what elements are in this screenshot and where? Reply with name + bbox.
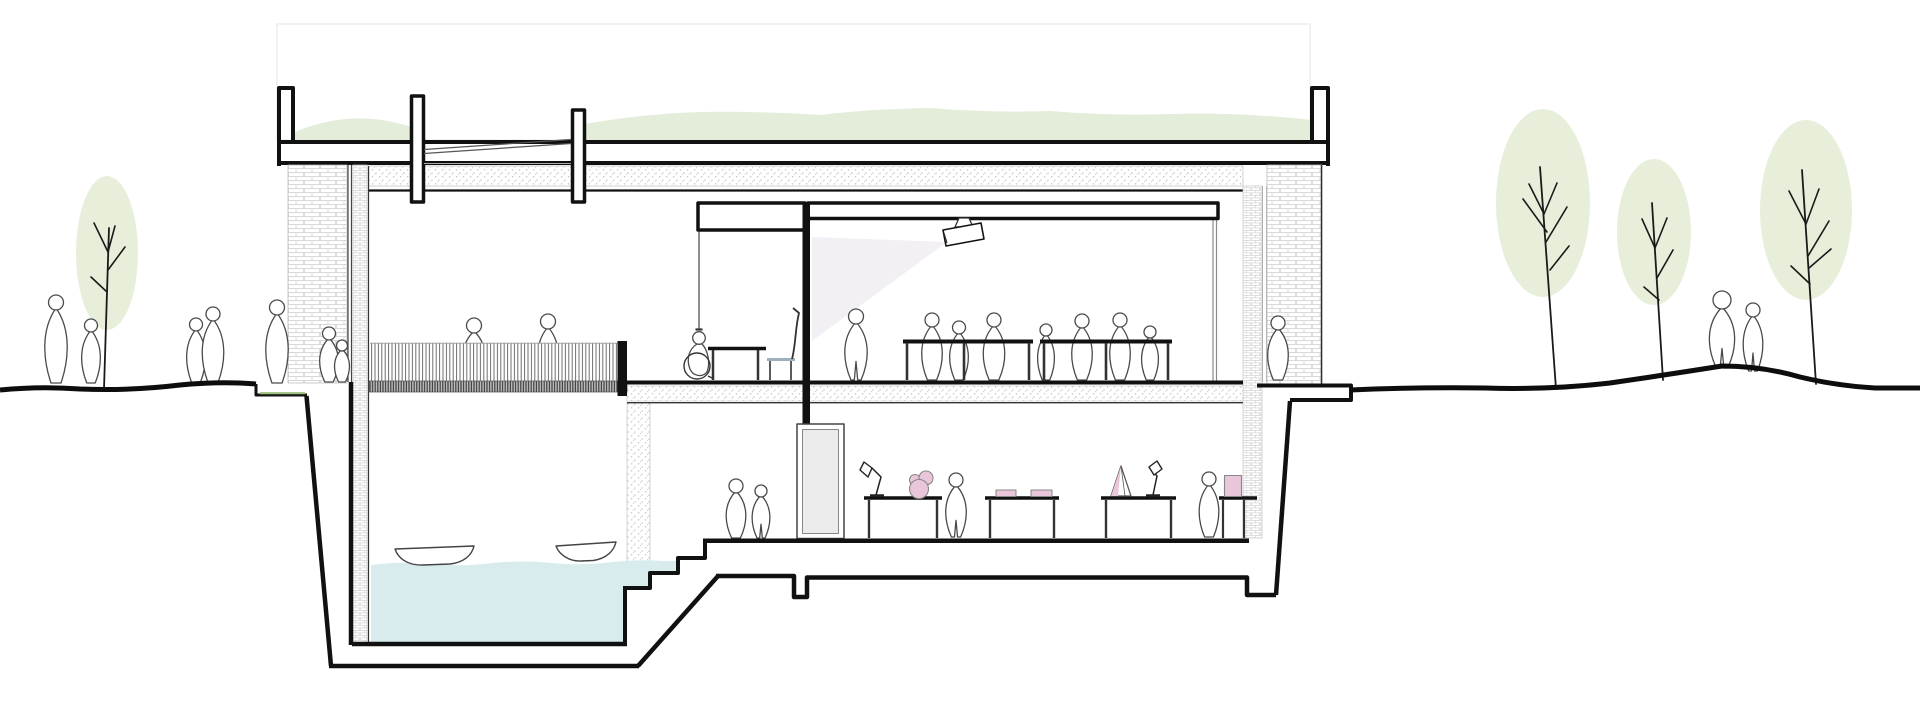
foundation-bottom-gallery [716,576,1276,597]
bridge-end-post [618,341,628,396]
task-lamp-1-head [860,462,872,477]
person-gallery-3-body [946,485,967,537]
person-outside-left-2-head [85,319,98,332]
pool-and-stairs [352,539,705,644]
person-seminar-standing-head [849,309,864,324]
person-outside-left-2-body [82,330,101,383]
person-gallery-3-head [949,473,963,487]
interior-fittings [627,203,1243,572]
ceiling-bulkhead-right [808,203,1218,219]
pink-exhibit-slab [996,490,1016,497]
person-by-right-wall-head [1271,316,1285,330]
bridge-railing-slats [370,343,618,381]
task-lamp-2-head [1149,461,1162,475]
person-seminar-table-6-body [1110,325,1131,380]
person-seminar-table-6-head [1113,313,1127,327]
person-seminar-table-2-body [950,332,969,380]
person-seminar-table-5-body [1072,326,1093,380]
door-head-bar [803,384,811,425]
brick-wall-left-inner [353,165,367,644]
boat-2 [556,542,616,561]
roof-buildup-band [369,166,1243,186]
footbridge-railing [369,341,627,396]
person-gallery-2-head [755,485,767,497]
floor-buildup-band [627,386,1243,401]
person-at-wall-base-child-head [337,340,348,351]
person-seminar-table-3-body [983,325,1005,380]
architectural-section-drawing [0,0,1920,718]
person-gallery-4-body [1199,484,1219,537]
boat-1 [395,546,474,565]
person-seminar-table-4-head [1040,324,1052,336]
excavation-diagonal-left [307,396,332,666]
architectural-section-page [0,0,1920,718]
person-seminar-table-1-body [922,325,943,380]
bridge-deck [369,381,627,392]
pink-exhibit-slab [1031,490,1052,497]
person-outside-right-adult-body [1709,307,1734,368]
person-at-wall-base-adult-head [323,327,336,340]
person-outside-left-1-body [45,308,67,383]
tree-right-3-canopy [1760,120,1852,300]
person-gallery-1-body [726,491,746,538]
person-outside-left-1-head [49,295,64,310]
person-seminar-table-7-head [1144,326,1156,338]
projector [943,223,984,246]
person-gallery-2-body [752,495,770,538]
rooflight-curb-2 [573,110,585,202]
person-outside-right-child-body [1743,315,1763,371]
person-outside-right-child-head [1746,303,1760,317]
chair-back [792,308,799,359]
ceiling-bulkhead-left [698,203,805,230]
person-wheelchair-at-desk-head [693,332,706,345]
person-outside-left-5-head [270,300,285,315]
brick-wall-right-inner [1243,186,1262,538]
person-on-bridge-1-head [467,318,482,333]
rooflight-curb-1 [412,96,424,202]
person-seminar-table-5-head [1075,314,1089,328]
person-outside-left-5-body [266,313,288,383]
person-outside-right-adult-head [1713,291,1731,309]
pool-water [371,560,678,643]
person-outside-left-4-head [206,307,220,321]
person-gallery-4-head [1202,472,1216,486]
person-wheelchair-at-desk-body [688,344,708,376]
pink-sculpture-blob [910,480,929,499]
stair-side-wall [627,403,650,572]
ground-line-left [0,383,256,390]
person-seminar-table-3-head [987,313,1001,327]
furniture-and-exhibits [708,308,1257,538]
person-seminar-standing-body [845,322,867,380]
right-ledge [1257,386,1351,401]
person-seminar-table-1-head [925,313,939,327]
person-seminar-table-2-head [953,321,966,334]
room-partition-wall [803,204,811,384]
gallery-door-panel [803,430,839,534]
foundation-battered-right [1276,401,1290,595]
person-on-bridge-2-head [541,314,556,329]
person-gallery-1-head [729,479,743,493]
pink-exhibit-box [1225,476,1242,497]
brick-wall-left-outer [288,165,347,383]
person-outside-left-3-head [190,318,203,331]
ground-line-right [1350,366,1920,390]
task-lamp-1-arm [872,468,881,495]
person-outside-left-4-body [202,319,224,383]
